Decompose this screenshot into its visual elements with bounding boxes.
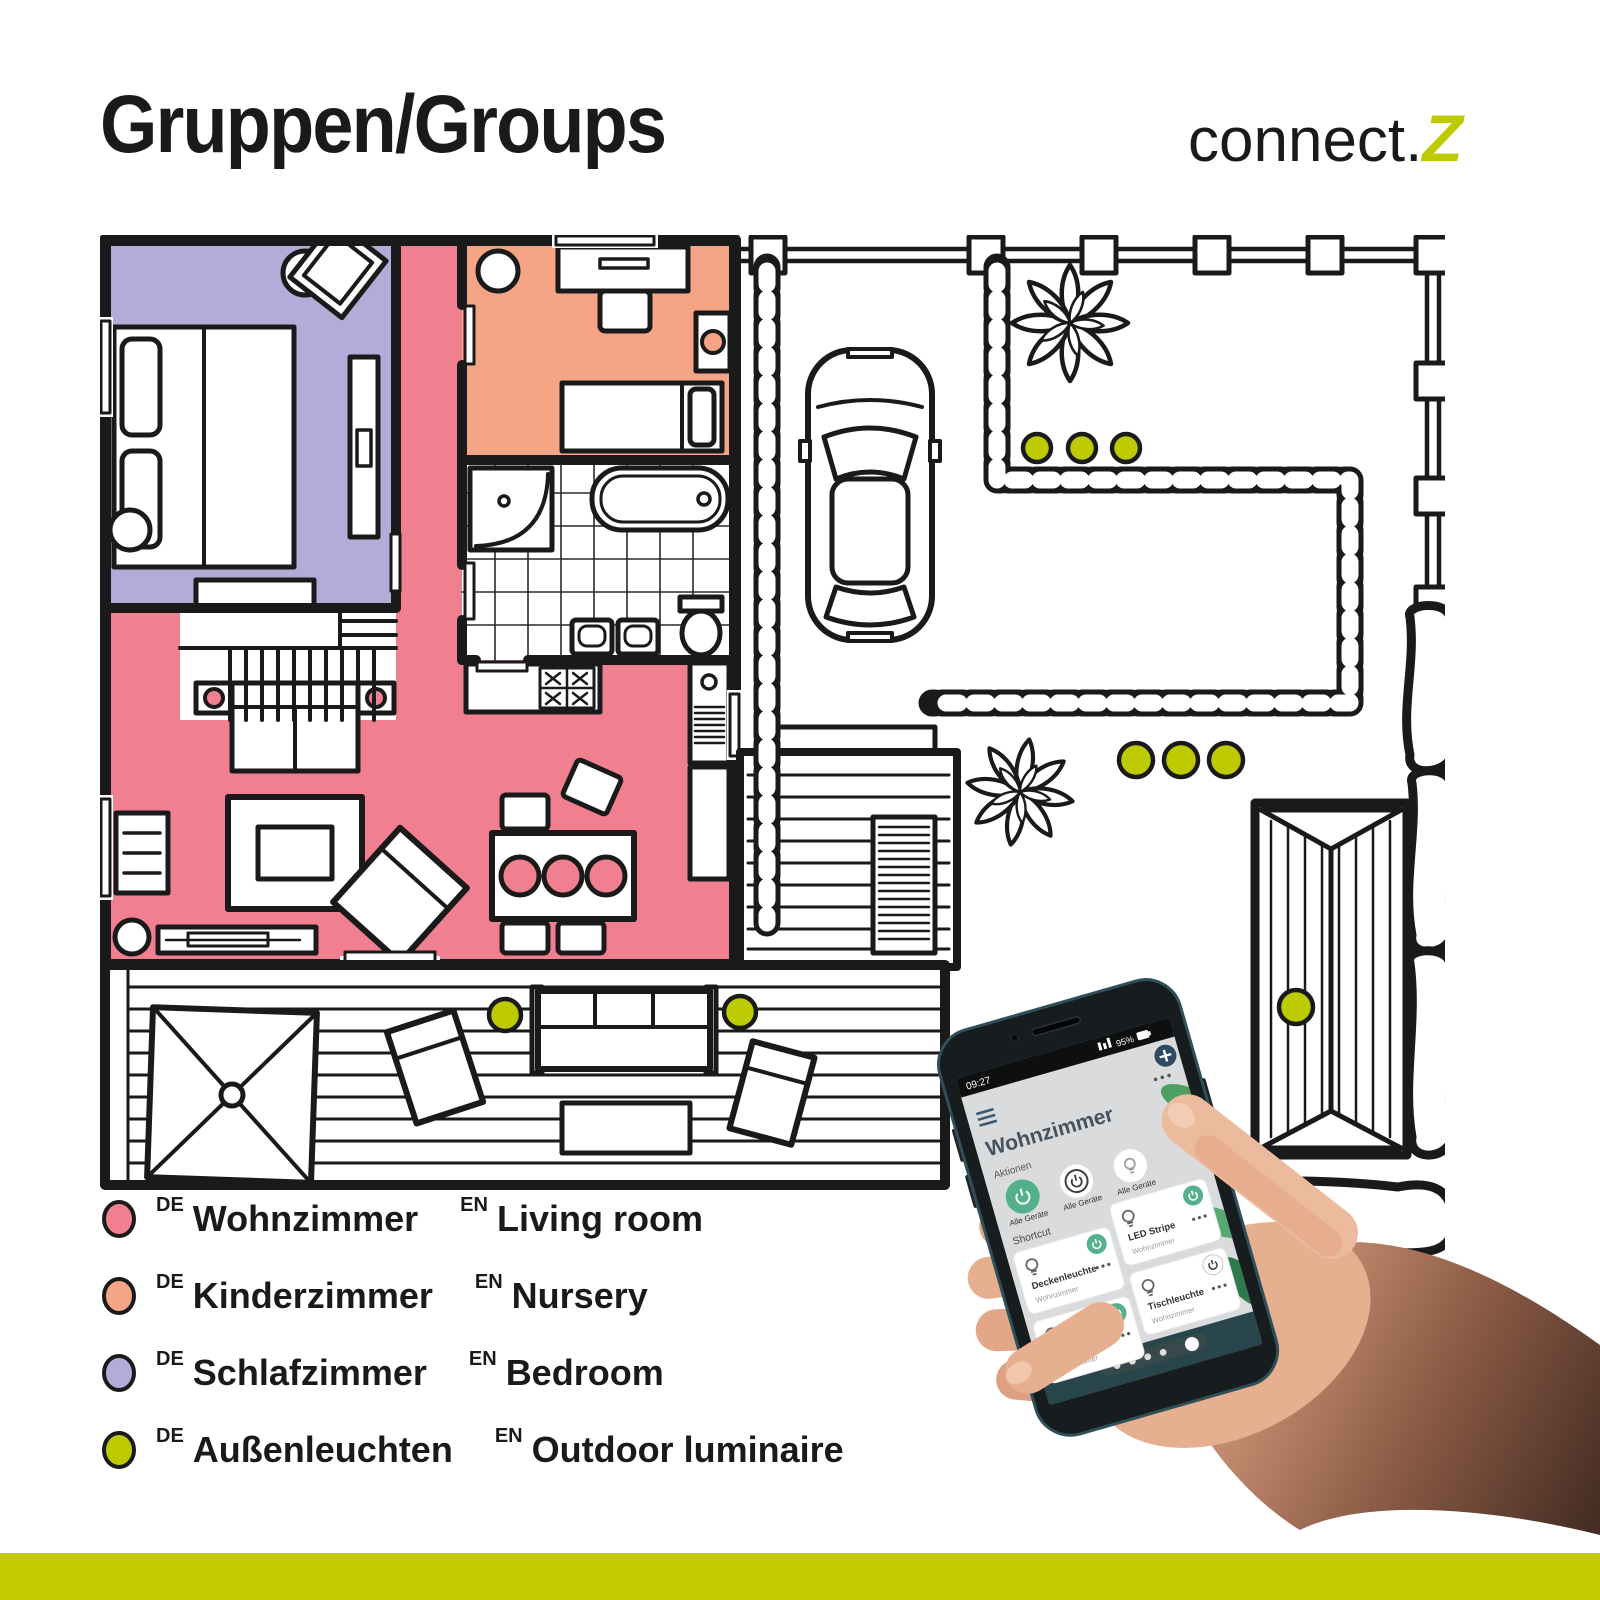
sink	[572, 620, 612, 654]
legend-en-tag: EN	[469, 1348, 497, 1371]
legend: DE Wohnzimmer EN Living room DE Kinderzi…	[100, 1180, 1050, 1488]
outdoor-sofa	[532, 987, 716, 1073]
car	[800, 349, 940, 641]
legend-de-name: Kinderzimmer	[193, 1275, 433, 1317]
sink	[618, 620, 658, 654]
sideboard	[196, 580, 314, 606]
legend-en-name: Nursery	[512, 1275, 648, 1317]
outdoor-light	[1209, 743, 1243, 777]
brand-name: connect.	[1188, 106, 1422, 175]
legend-de-tag: DE	[156, 1425, 184, 1448]
brand-footer-bar	[0, 1553, 1600, 1600]
legend-row-aussenleuchten: DE Außenleuchten EN Outdoor luminaire	[100, 1411, 1050, 1488]
legend-swatch-kinderzimmer	[100, 1276, 138, 1316]
plant	[1012, 265, 1128, 381]
page-title: Gruppen/Groups	[100, 78, 665, 172]
legend-swatch-aussenleuchten	[100, 1430, 138, 1470]
outdoor-light	[1119, 743, 1153, 777]
outdoor-table	[562, 1103, 690, 1153]
living-lamp	[115, 920, 149, 954]
parasol	[147, 1007, 317, 1183]
legend-row-wohnzimmer: DE Wohnzimmer EN Living room	[100, 1180, 1050, 1257]
brand-logo: connect.Z	[1188, 100, 1463, 176]
plant	[966, 738, 1074, 846]
legend-en-name: Outdoor luminaire	[532, 1429, 844, 1471]
kitchen-counter-2	[690, 767, 729, 879]
legend-en-name: Living room	[497, 1198, 703, 1240]
toilet	[680, 597, 722, 655]
outdoor-light	[1112, 434, 1140, 462]
legend-swatch-wohnzimmer	[100, 1199, 138, 1239]
nursery-lamp	[478, 251, 518, 291]
legend-de-tag: DE	[156, 1194, 184, 1217]
tv-board	[158, 927, 316, 953]
legend-row-kinderzimmer: DE Kinderzimmer EN Nursery	[100, 1257, 1050, 1334]
legend-row-schlafzimmer: DE Schlafzimmer EN Bedroom	[100, 1334, 1050, 1411]
outdoor-light	[1023, 434, 1051, 462]
legend-en-tag: EN	[475, 1271, 503, 1294]
legend-en-tag: EN	[495, 1425, 523, 1448]
legend-de-name: Wohnzimmer	[193, 1198, 418, 1240]
legend-en-tag: EN	[460, 1194, 488, 1217]
legend-de-tag: DE	[156, 1271, 184, 1294]
desk-chair	[600, 291, 650, 331]
outdoor-light	[724, 996, 756, 1028]
outdoor-light	[1068, 434, 1096, 462]
legend-en-name: Bedroom	[506, 1352, 664, 1394]
outdoor-light	[1164, 743, 1198, 777]
legend-de-tag: DE	[156, 1348, 184, 1371]
legend-swatch-schlafzimmer	[100, 1353, 138, 1393]
legend-de-name: Schlafzimmer	[193, 1352, 427, 1394]
floor-lamp	[110, 510, 150, 550]
window-bench	[116, 813, 168, 893]
legend-de-name: Außenleuchten	[193, 1429, 453, 1471]
stove	[540, 668, 594, 708]
outdoor-light	[489, 999, 521, 1031]
deck	[105, 965, 945, 1185]
brand-z: Z	[1422, 101, 1462, 175]
